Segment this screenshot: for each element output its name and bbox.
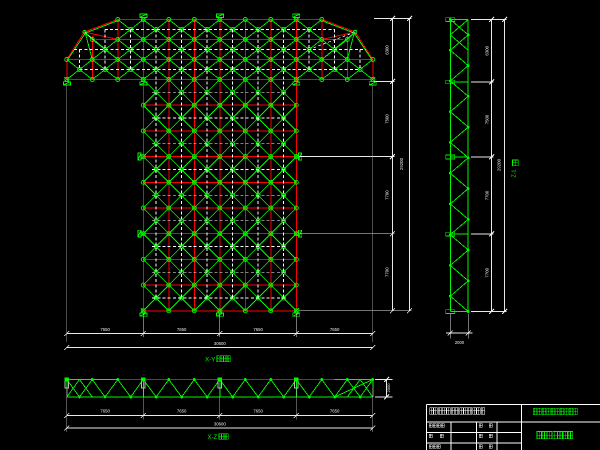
svg-text:30600: 30600	[214, 422, 227, 427]
svg-text:7650: 7650	[100, 409, 110, 414]
svg-text:7650: 7650	[253, 327, 263, 332]
svg-text:7650: 7650	[177, 409, 187, 414]
svg-text:29200: 29200	[399, 157, 404, 170]
svg-text:7500: 7500	[385, 114, 390, 124]
svg-text:7700: 7700	[485, 190, 490, 200]
svg-text:7650: 7650	[100, 327, 110, 332]
svg-text:30600: 30600	[214, 341, 227, 346]
svg-text:7650: 7650	[177, 327, 187, 332]
svg-text:X-Y: X-Y	[205, 357, 216, 364]
svg-text:7700: 7700	[385, 267, 390, 277]
svg-text:7700: 7700	[385, 190, 390, 200]
svg-text:Z-1: Z-1	[511, 169, 517, 177]
svg-text:6300: 6300	[485, 45, 490, 55]
svg-text:X-Z: X-Z	[208, 435, 218, 441]
svg-text:2000: 2000	[455, 340, 465, 345]
svg-text:7650: 7650	[330, 409, 340, 414]
svg-text:2000: 2000	[386, 383, 391, 393]
svg-text:7650: 7650	[330, 327, 340, 332]
svg-text:7500: 7500	[485, 114, 490, 124]
svg-text:7700: 7700	[485, 267, 490, 277]
svg-text:6300: 6300	[385, 45, 390, 55]
svg-text:29200: 29200	[497, 158, 502, 171]
svg-text:7650: 7650	[253, 409, 263, 414]
